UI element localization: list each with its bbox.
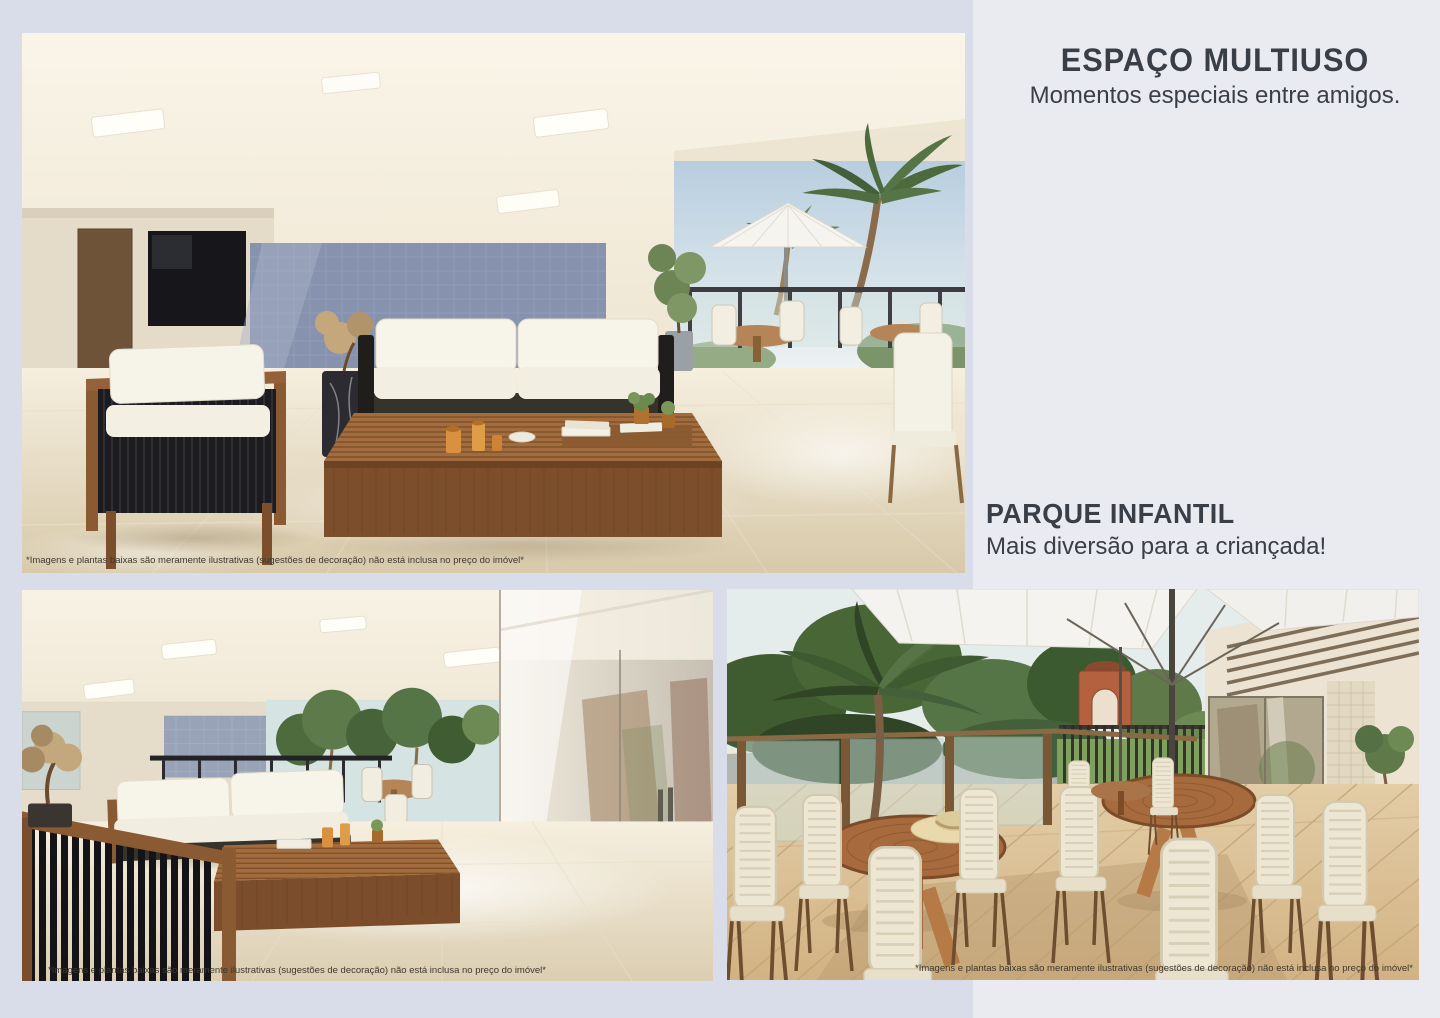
render-disclaimer: *Imagens e plantas baixas são meramente … [26, 555, 524, 566]
espaco-multiuso-render-graphic [22, 33, 965, 573]
espaco-multiuso-title: ESPAÇO MULTIUSO [1011, 42, 1420, 79]
espaco-multiuso-subtitle: Momentos especiais entre amigos. [1002, 82, 1428, 110]
render-espaco-multiuso-1: *Imagens e plantas baixas são meramente … [22, 33, 965, 573]
parque-infantil-render-graphic [727, 589, 1419, 980]
espaco-multiuso-render-2-graphic [22, 590, 713, 981]
parque-infantil-title: PARQUE INFANTIL [986, 498, 1413, 530]
render-disclaimer: *Imagens e plantas baixas são meramente … [48, 965, 546, 976]
playground-house-icon [1079, 661, 1131, 727]
render-disclaimer: *Imagens e plantas baixas são meramente … [915, 963, 1413, 974]
render-parque-infantil: *Imagens e plantas baixas são meramente … [727, 589, 1419, 980]
render-espaco-multiuso-2: *Imagens e plantas baixas são meramente … [22, 590, 713, 981]
parque-infantil-header: PARQUE INFANTIL Mais diversão para a cri… [986, 498, 1431, 561]
parque-infantil-subtitle: Mais diversão para a criançada! [986, 533, 1431, 561]
brochure-page: *Imagens e plantas baixas são meramente … [0, 0, 1440, 1018]
espaco-multiuso-header: ESPAÇO MULTIUSO Momentos especiais entre… [1002, 42, 1428, 110]
coffee-table-icon [317, 392, 729, 537]
